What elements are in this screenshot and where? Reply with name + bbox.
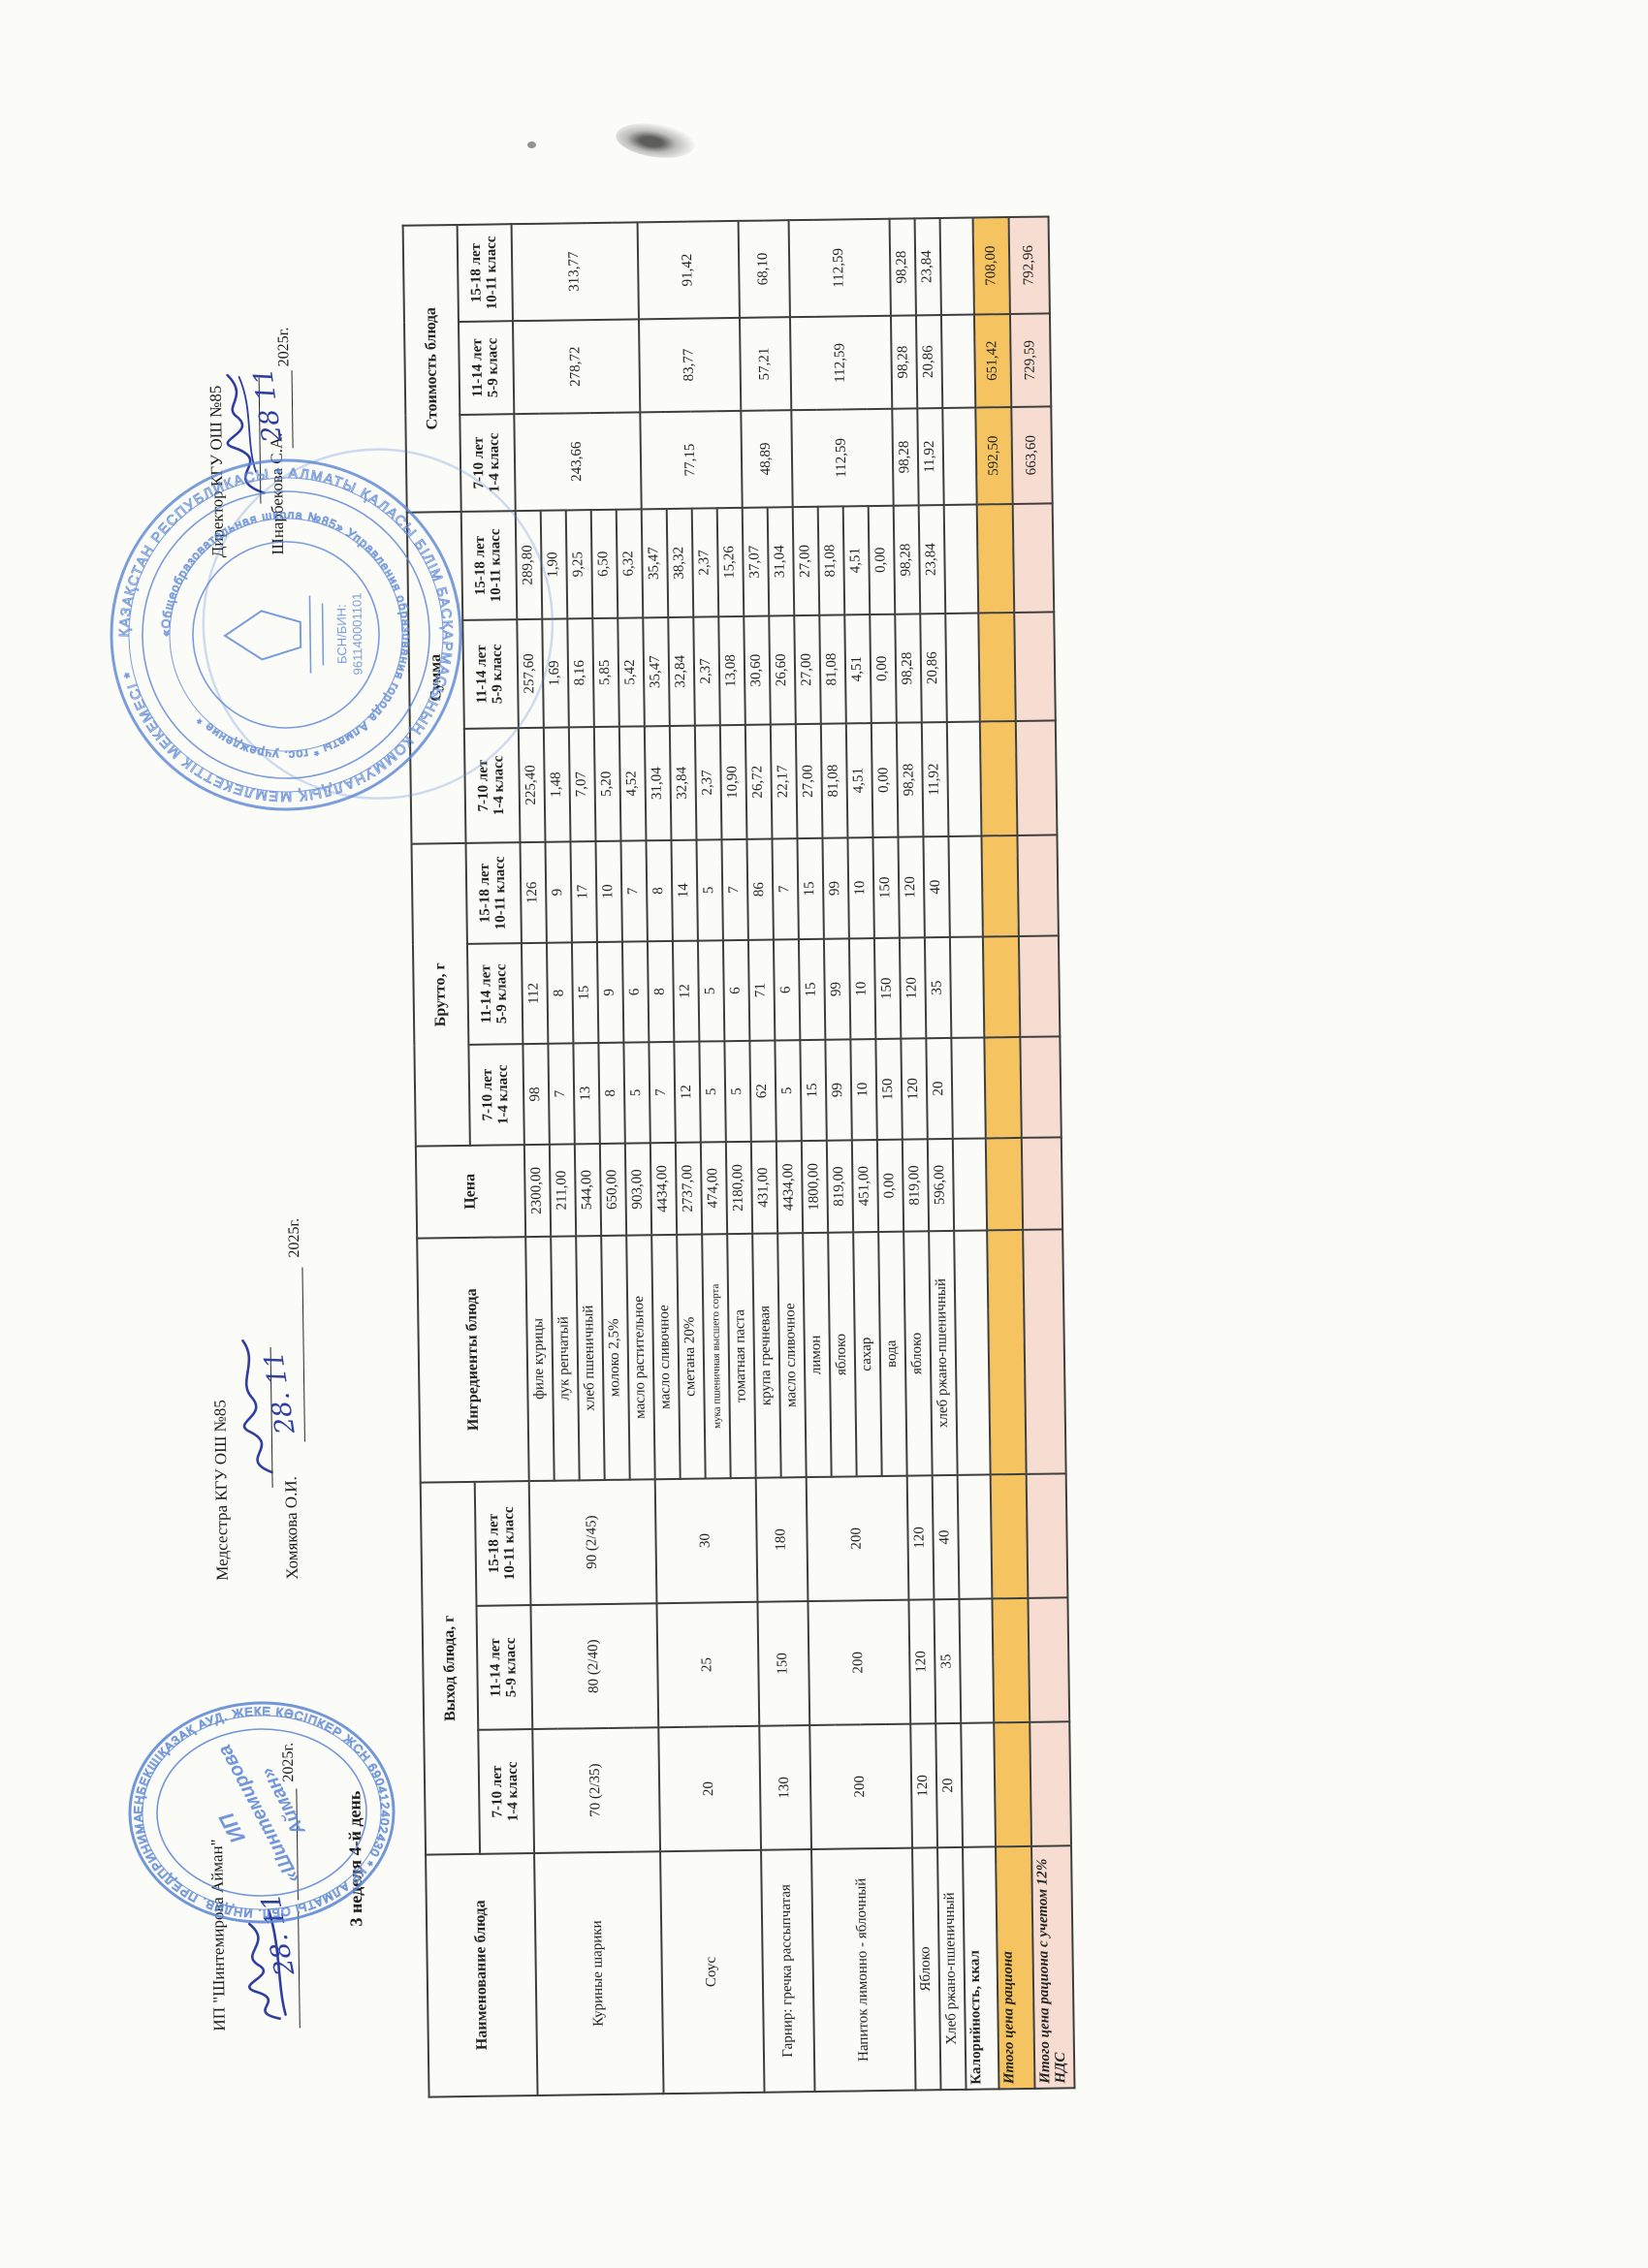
cell-price: 0,00 [877, 1140, 903, 1232]
cell-brutto: 35 [925, 937, 951, 1038]
cell-price: 819,00 [827, 1140, 853, 1232]
cell-price: 2180,00 [726, 1142, 752, 1234]
cell-price: 431,00 [751, 1141, 777, 1233]
cell-cost: 98,28 [891, 315, 917, 408]
nurse-signature-block: Медсестра КГУ ОШ №85 Хомякова О.И. 28. 1… [206, 1172, 328, 1581]
cell-price: 211,00 [550, 1144, 576, 1236]
cell-summa: 5,85 [592, 618, 619, 727]
cell-brutto: 5 [696, 839, 722, 940]
cell-ingredient: томатная паста [727, 1234, 756, 1478]
cell-empty [980, 721, 1018, 836]
cell-summa: 32,84 [670, 726, 697, 840]
cell-ingredient: хлеб пшеничный [576, 1236, 605, 1480]
cell-empty [954, 1230, 991, 1474]
cell-empty [945, 613, 980, 721]
cell-summa: 4,51 [844, 614, 872, 723]
cell-brutto: 99 [824, 938, 850, 1039]
cell-cost: 708,00 [973, 217, 1010, 315]
cell-brutto: 120 [898, 836, 924, 937]
cell-cost: 91,42 [638, 221, 740, 319]
cell-summa: 5,42 [618, 617, 645, 726]
cell-brutto: 9 [545, 841, 571, 942]
cell-portion: 180 [756, 1477, 808, 1602]
cell-cost: 243,66 [514, 412, 641, 511]
cell-cost: 729,59 [1010, 313, 1051, 407]
header-age-col-3: 15-18 лет10-11 класс [458, 224, 513, 322]
cell-summa: 10,90 [720, 725, 747, 839]
cell-ingredient: филе курицы [525, 1237, 555, 1481]
cell-price: 903,00 [625, 1143, 651, 1235]
cell-portion: 200 [807, 1476, 909, 1601]
cell-brutto: 150 [874, 938, 901, 1039]
cell-summa: 4,51 [843, 506, 871, 614]
cell-empty [981, 835, 1018, 937]
cell-brutto: 150 [872, 837, 899, 938]
cell-summa: 0,00 [869, 506, 896, 614]
cell-summa: 1,48 [544, 727, 571, 841]
cell-brutto: 62 [749, 1040, 776, 1141]
cell-portion: 40 [933, 1475, 960, 1599]
cell-brutto: 13 [573, 1043, 599, 1144]
cell-summa: 257,60 [517, 619, 544, 728]
cell-price: 2737,00 [676, 1143, 702, 1235]
cell-ingredient: масло растительное [626, 1235, 655, 1479]
school-round-stamp-icon: ҚАЗАҚСТАН РЕСПУБЛИКАСЫ * АЛМАТЫ ҚАЛАСЫ Б… [99, 448, 472, 821]
cell-summa: 7,07 [569, 727, 596, 841]
cell-extra-label: Итого цена рациона с учетом 12% НДС [1031, 1845, 1074, 2089]
cell-portion: 150 [757, 1601, 809, 1726]
cell-brutto: 99 [822, 837, 848, 938]
cell-brutto: 120 [900, 937, 926, 1038]
nurse-date-line [301, 1267, 305, 1441]
cell-summa: 26,60 [769, 615, 796, 724]
cell-brutto: 8 [646, 840, 672, 941]
cell-brutto: 14 [671, 840, 697, 941]
cell-summa: 4,51 [846, 723, 873, 837]
cell-summa: 289,80 [516, 511, 543, 619]
cell-summa: 6,32 [617, 509, 644, 617]
cell-summa: 6,50 [591, 510, 618, 618]
cell-portion: 20 [658, 1726, 761, 1851]
cell-empty [978, 613, 1016, 722]
cell-cost: 98,28 [890, 218, 916, 315]
scan-dot [527, 142, 536, 148]
cell-summa: 23,84 [919, 505, 946, 614]
cell-brutto: 9 [597, 942, 623, 1043]
cell-empty [953, 1138, 987, 1230]
cell-brutto: 40 [923, 836, 949, 937]
cell-empty [984, 1037, 1021, 1139]
cell-summa: 98,28 [895, 614, 922, 722]
cell-brutto: 8 [648, 941, 674, 1042]
cell-dish-name: Соус [660, 1850, 764, 2094]
svg-text:961140001101: 961140001101 [349, 592, 364, 675]
cell-summa: 98,28 [894, 505, 921, 614]
scanned-document-page: { "doc": { "week_label": "3 неделя 4-й д… [0, 0, 1648, 2268]
cell-brutto: 5 [698, 940, 724, 1041]
cell-ingredient: мука пшеничная высшего сорта [702, 1234, 731, 1478]
cell-cost [942, 407, 976, 504]
cell-empty [986, 1138, 1023, 1231]
cell-cost: 592,50 [975, 407, 1012, 505]
cell-empty [994, 1722, 1031, 1847]
menu-cost-table-wrap: Наименование блюдаВыход блюда, гИнгредие… [401, 208, 1077, 2097]
cell-ingredient: яблоко [903, 1231, 933, 1475]
cell-cost: 83,77 [639, 318, 741, 412]
cell-cost: 112,59 [791, 409, 893, 507]
cell-empty [1014, 612, 1056, 721]
cell-summa: 4,52 [619, 726, 647, 840]
cell-ingredient: лук репчатый [551, 1236, 580, 1480]
header-age-col-2: 11-14 лет5-9 класс [467, 943, 523, 1045]
cell-empty [1017, 835, 1058, 936]
cell-cost: 11,92 [917, 408, 943, 505]
cell-summa: 13,08 [718, 616, 745, 725]
cell-empty [1013, 503, 1055, 613]
cell-ingredient: лимон [803, 1233, 832, 1477]
header-brutto-group: Брутто, г [412, 843, 470, 1147]
cell-extra-label: Итого цена рациона [996, 1846, 1034, 2089]
cell-cost: 278,72 [513, 319, 640, 414]
cell-cost: 48,89 [741, 410, 792, 508]
cell-brutto: 15 [797, 838, 823, 939]
cell-summa: 26,72 [745, 724, 773, 838]
cell-cost: 20,86 [916, 315, 942, 408]
cell-price: 451,00 [852, 1140, 878, 1232]
cell-summa: 81,08 [821, 723, 848, 837]
cell-empty [991, 1474, 1029, 1599]
cell-portion: 90 (2/45) [529, 1479, 657, 1605]
cell-price: 1800,00 [802, 1141, 828, 1233]
cell-cost: 112,59 [790, 316, 892, 410]
cell-summa: 38,32 [667, 509, 694, 617]
cell-empty [992, 1598, 1030, 1723]
cell-brutto: 7 [772, 838, 798, 939]
cell-brutto: 5 [724, 1041, 750, 1142]
cell-empty [1030, 1721, 1071, 1846]
cell-summa: 30,60 [744, 615, 771, 724]
cell-brutto: 86 [746, 838, 773, 939]
cell-price: 544,00 [575, 1144, 601, 1236]
cell-summa: 98,28 [897, 722, 924, 836]
header-age-col-3: 15-18 лет10-11 класс [475, 1481, 531, 1606]
header-ingredients: Ингредиенты блюда [417, 1237, 529, 1483]
cell-ingredient: сахар [853, 1232, 882, 1476]
cell-brutto: 98 [523, 1044, 549, 1145]
cell-cost: 98,28 [892, 408, 918, 505]
cell-summa: 27,00 [796, 724, 823, 838]
header-age-col-1: 7-10 лет1-4 класс [478, 1729, 534, 1854]
cell-price: 596,00 [928, 1139, 954, 1231]
cell-dish-name: Гарнир: гречка рассыпчатая [761, 1849, 814, 2093]
nurse-year: 2025г. [286, 1218, 304, 1258]
cell-brutto: 5 [623, 1042, 650, 1143]
cell-empty [950, 936, 984, 1037]
cell-ingredient: сметана 20% [677, 1235, 706, 1479]
cell-empty [947, 721, 982, 835]
cell-brutto: 5 [775, 1040, 801, 1141]
cell-brutto: 12 [673, 941, 699, 1042]
cell-ingredient: масло сливочное [651, 1235, 681, 1479]
cell-portion: 120 [910, 1723, 937, 1847]
cell-brutto: 12 [674, 1042, 700, 1143]
cell-price: 4434,00 [776, 1141, 803, 1233]
cell-cost: 792,96 [1009, 216, 1050, 314]
cell-empty [959, 1598, 994, 1722]
cell-price: 2300,00 [524, 1145, 551, 1237]
cell-summa: 22,17 [771, 724, 798, 838]
cell-summa: 81,08 [818, 506, 845, 614]
cell-portion: 25 [656, 1602, 759, 1727]
cell-summa: 9,25 [566, 510, 593, 618]
cell-summa: 0,00 [870, 614, 897, 723]
cell-brutto: 10 [850, 1039, 876, 1140]
cell-price: 474,00 [701, 1142, 727, 1234]
cell-price: 650,00 [600, 1144, 626, 1236]
svg-text:«Общеобразовательная школа №85: «Общеобразовательная школа №85» Управлен… [157, 506, 415, 764]
cell-portion: 70 (2/35) [532, 1727, 660, 1853]
cell-summa: 0,00 [872, 723, 899, 837]
cell-brutto: 10 [849, 938, 875, 1039]
scan-smudge [614, 118, 697, 162]
cell-brutto: 15 [572, 942, 598, 1043]
cell-portion: 120 [908, 1599, 935, 1723]
cell-brutto: 7 [620, 840, 647, 941]
cell-portion: 120 [907, 1475, 935, 1599]
cell-cost: 313,77 [512, 222, 639, 321]
cell-summa: 2,37 [692, 508, 719, 616]
menu-cost-table: Наименование блюдаВыход блюда, гИнгредие… [402, 215, 1076, 2097]
cell-empty [1022, 1137, 1062, 1230]
cell-brutto: 5 [699, 1041, 725, 1142]
cell-brutto: 10 [595, 841, 621, 942]
cell-empty [1020, 1036, 1061, 1138]
cell-cost: 68,10 [739, 220, 790, 318]
cell-empty [951, 1037, 985, 1138]
cell-summa: 1,90 [541, 510, 568, 618]
cell-ingredient: крупа гречневая [752, 1233, 781, 1477]
header-age-col-1: 7-10 лет1-4 класс [464, 728, 521, 843]
cell-price: 4434,00 [650, 1143, 677, 1235]
cell-empty [948, 835, 982, 936]
cell-summa: 27,00 [794, 615, 821, 724]
director-year: 2025г. [275, 327, 294, 366]
cell-brutto: 112 [522, 943, 548, 1044]
cell-summa: 35,47 [643, 617, 670, 726]
cell-empty [1019, 935, 1060, 1037]
cell-summa: 11,92 [922, 722, 949, 836]
cell-brutto: 126 [520, 842, 546, 943]
header-price: Цена [416, 1145, 525, 1239]
cell-summa: 81,08 [819, 614, 846, 723]
cell-cost: 57,21 [740, 317, 791, 411]
nurse-name: Хомякова О.И. [281, 1476, 301, 1580]
cell-empty [987, 1230, 1027, 1474]
header-age-col-2: 11-14 лет5-9 класс [476, 1605, 532, 1730]
header-output-group: Выход блюда, г [421, 1482, 480, 1855]
cell-brutto: 7 [548, 1043, 574, 1144]
cell-summa: 31,04 [645, 726, 672, 840]
cell-brutto: 120 [901, 1038, 927, 1139]
cell-cost: 112,59 [789, 219, 891, 317]
cell-summa: 31,04 [768, 507, 795, 615]
cell-summa: 8,16 [567, 618, 594, 727]
cell-cost: 651,42 [974, 314, 1011, 408]
cell-ingredient: масло сливочное [777, 1233, 807, 1477]
cell-brutto: 10 [847, 837, 873, 938]
cell-empty [1028, 1597, 1069, 1722]
cell-brutto: 6 [774, 939, 800, 1040]
cell-brutto: 6 [622, 941, 649, 1042]
cell-brutto: 150 [875, 1039, 902, 1140]
cell-portion: 130 [759, 1725, 811, 1850]
cell-cost: 663,60 [1011, 406, 1052, 504]
cell-brutto: 20 [926, 1038, 952, 1139]
cell-empty [1016, 720, 1058, 835]
cell-summa: 2,37 [695, 725, 722, 839]
cell-empty [977, 504, 1015, 614]
cell-summa: 15,26 [717, 508, 745, 616]
cell-ingredient: вода [878, 1232, 907, 1476]
header-age-col-2: 11-14 лет5-9 класс [459, 321, 514, 415]
cell-summa: 32,84 [668, 617, 695, 726]
cell-summa: 35,47 [642, 509, 669, 617]
cell-portion: 35 [934, 1599, 961, 1723]
svg-text:ИП: ИП [213, 1808, 249, 1847]
cell-summa: 37,07 [743, 507, 770, 615]
cell-dish-name: Напиток лимонно - яблочный [811, 1848, 915, 2092]
header-dish-name: Наименование блюда [426, 1853, 537, 2097]
header-age-col-1: 7-10 лет1-4 класс [468, 1044, 523, 1146]
svg-text:БСН/БИН:: БСН/БИН: [334, 604, 350, 664]
cell-empty [1023, 1229, 1066, 1474]
cell-cost [940, 217, 974, 314]
cell-cost: 77,15 [640, 411, 742, 509]
cell-brutto: 17 [570, 841, 596, 942]
cell-portion: 20 [935, 1723, 963, 1847]
cell-summa: 5,20 [594, 727, 621, 841]
vendor-stamp-wrap: ЕҢБЕКШІҚАЗАҚ АУД. ЖЕКЕ КӘСІПКЕР ЖСН 6904… [119, 1689, 403, 1936]
header-age-col-3: 15-18 лет10-11 класс [466, 842, 522, 944]
cell-empty [983, 936, 1020, 1038]
cell-brutto: 71 [748, 939, 775, 1040]
nurse-role: Медсестра КГУ ОШ №85 [210, 1400, 233, 1581]
cell-empty [958, 1474, 993, 1598]
cell-ingredient: молоко 2,5% [601, 1236, 630, 1480]
cell-extra-label: Калорийность, ккал [963, 1846, 998, 2089]
cell-brutto: 7 [721, 839, 747, 940]
cell-brutto: 6 [723, 940, 749, 1041]
cell-empty [961, 1722, 996, 1846]
cell-brutto: 8 [547, 942, 573, 1043]
cell-portion: 80 (2/40) [530, 1603, 658, 1729]
cell-cost: 23,84 [915, 218, 941, 315]
cell-brutto: 99 [825, 1039, 851, 1140]
cell-price: 819,00 [903, 1139, 929, 1231]
vendor-oval-stamp-icon: ЕҢБЕКШІҚАЗАҚ АУД. ЖЕКЕ КӘСІПКЕР ЖСН 6904… [119, 1689, 403, 1936]
cell-empty [1027, 1473, 1068, 1598]
cell-ingredient: яблоко [828, 1232, 857, 1476]
cell-cost [941, 314, 975, 407]
cell-empty [944, 504, 979, 613]
director-date-line [292, 370, 294, 448]
cell-dish-name: Куриные шарики [534, 1851, 663, 2095]
cell-summa: 20,86 [920, 614, 947, 722]
school-stamp-wrap: ҚАЗАҚСТАН РЕСПУБЛИКАСЫ * АЛМАТЫ ҚАЛАСЫ Б… [99, 448, 472, 821]
cell-brutto: 15 [800, 1040, 826, 1141]
cell-ingredient: хлеб ржано-пшеничный [929, 1231, 958, 1475]
cell-brutto: 7 [649, 1042, 675, 1143]
cell-portion: 200 [808, 1600, 910, 1725]
cell-portion: 30 [655, 1478, 758, 1603]
cell-dish-name: Хлеб ржано-пшеничный [937, 1847, 966, 2090]
cell-summa: 225,40 [519, 728, 546, 842]
cell-summa: 2,37 [693, 616, 720, 725]
cell-summa: 27,00 [793, 507, 820, 615]
cell-dish-name: Яблоко [912, 1847, 940, 2090]
cell-portion: 200 [809, 1724, 912, 1849]
cell-brutto: 15 [799, 939, 825, 1040]
cell-brutto: 8 [598, 1043, 624, 1144]
